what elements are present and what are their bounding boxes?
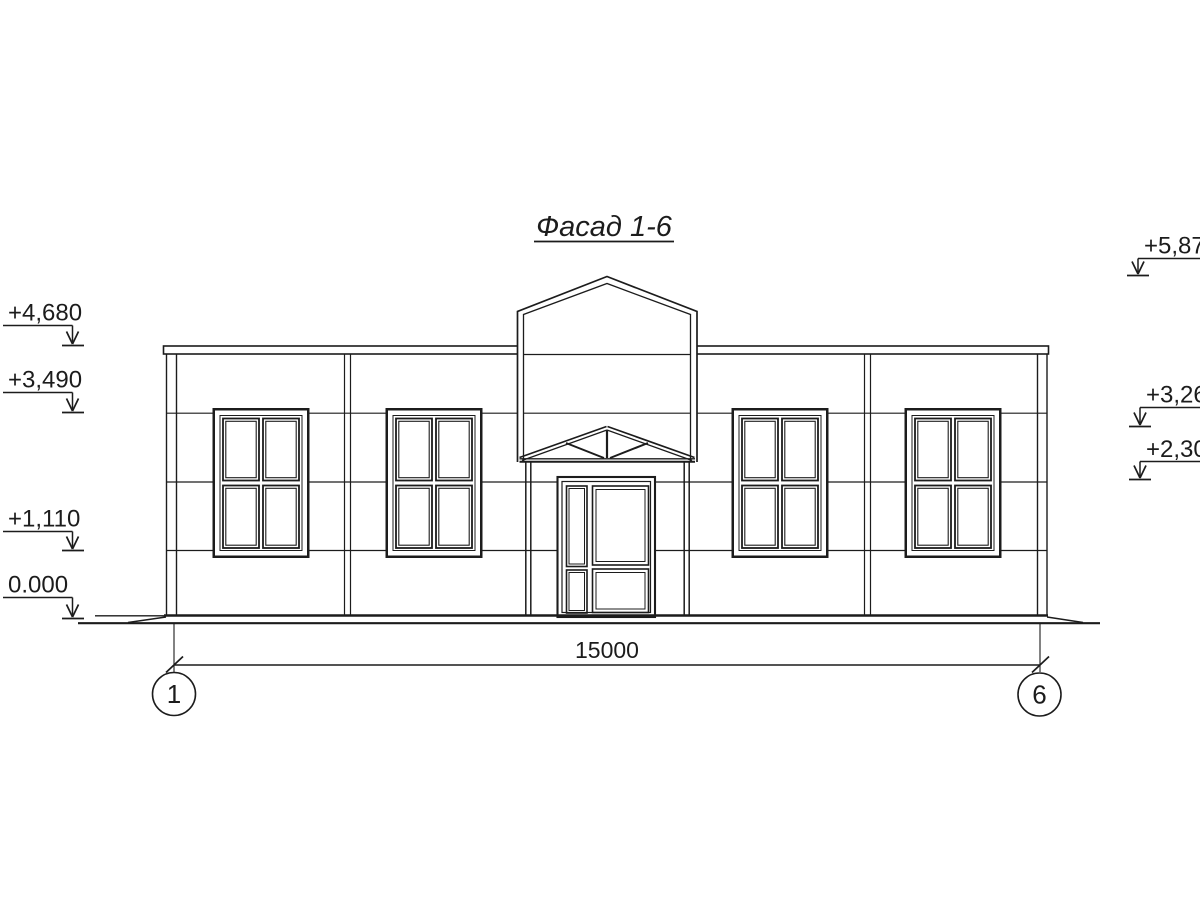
axis-label-1: 1 — [167, 679, 181, 709]
facade-drawing-sheet: Фасад 1-6 — [0, 0, 1200, 900]
axis-label-6: 6 — [1032, 680, 1046, 710]
drawing-title-text: Фасад 1-6 — [536, 211, 673, 243]
elevation-label: +2,300 — [1146, 436, 1200, 463]
elevation-label: +3,260 — [1146, 382, 1200, 409]
elevation-label: +3,490 — [8, 367, 82, 394]
entrance-door — [558, 477, 656, 617]
elevation-label: 0.000 — [8, 572, 68, 599]
window-4 — [906, 409, 1001, 557]
facade-elevation-svg: Фасад 1-6 — [0, 0, 1200, 900]
door-frame-outer — [558, 477, 656, 617]
elevation-label: +4,680 — [8, 300, 82, 327]
drawing-title: Фасад 1-6 — [534, 211, 674, 243]
elevation-label: +5,870 — [1144, 233, 1200, 260]
elevation-label: +1,110 — [8, 506, 80, 533]
dimension-value: 15000 — [575, 637, 639, 663]
window-3 — [733, 409, 828, 557]
window-2 — [387, 409, 482, 557]
window-1 — [214, 409, 309, 557]
